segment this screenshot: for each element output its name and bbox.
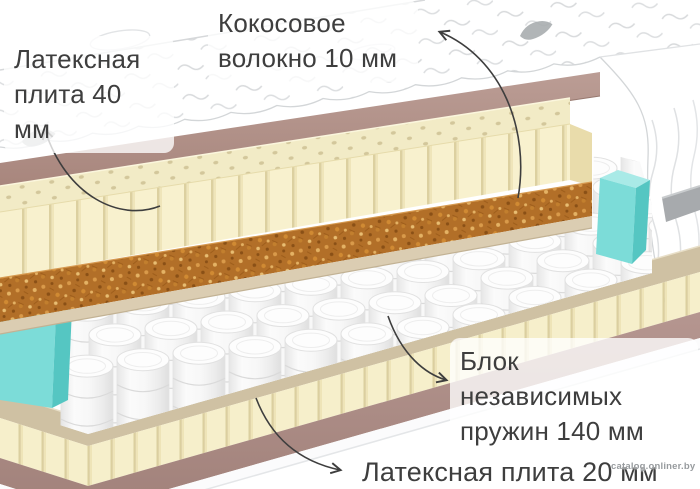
callout-latex-top: Латексная плита 40 мм: [4, 36, 174, 153]
watermark: catalog.onliner.by: [611, 461, 695, 472]
side-support-right-front: [596, 178, 636, 264]
latex-40-end-face: [570, 124, 592, 186]
mattress-cutaway-diagram: Латексная плита 40 мм Кокосовое волокно …: [0, 0, 700, 489]
callout-springs: Блок независимых пружин 140 мм: [450, 338, 698, 455]
side-support-right: [596, 170, 650, 264]
callout-coconut: Кокосовое волокно 10 мм: [208, 0, 418, 82]
